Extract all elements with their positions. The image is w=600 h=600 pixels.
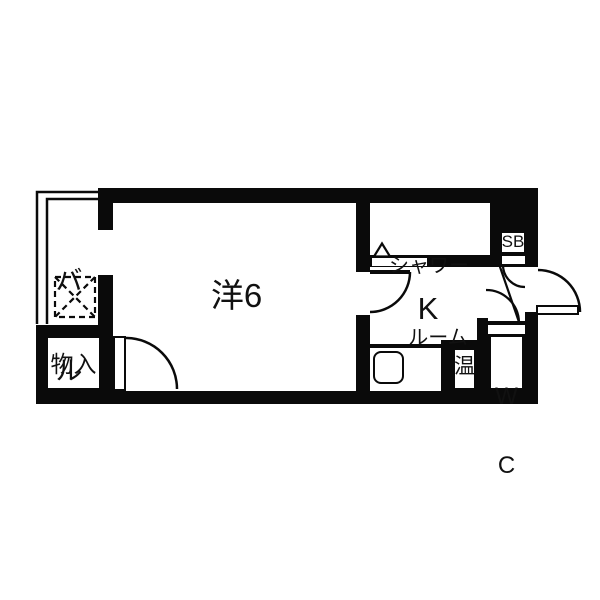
wc-door-arc — [486, 290, 519, 322]
water-heater-label: 温 — [452, 356, 477, 378]
storage-door-arc — [126, 338, 177, 389]
toilet-label-line2: C — [488, 454, 525, 477]
shoe-box-label: SB — [500, 233, 526, 251]
floor-plan: バ ル 洋6 物入 シャワー ルーム SB K 温 W C — [0, 0, 600, 600]
storage-label: 物入 — [45, 352, 102, 376]
entrance-door-arc — [538, 270, 580, 312]
western-room-label: 洋6 — [174, 279, 299, 314]
toilet-label: W C — [488, 339, 525, 523]
shower-room-label-line1: シャワー — [370, 254, 488, 278]
balcony-label-char1: バ — [52, 266, 86, 296]
toilet-label-line1: W — [488, 385, 525, 408]
shower-room-label-line2: ルーム — [370, 326, 488, 350]
balcony-label: バ ル — [52, 206, 86, 446]
kitchen-label: K — [398, 293, 458, 326]
